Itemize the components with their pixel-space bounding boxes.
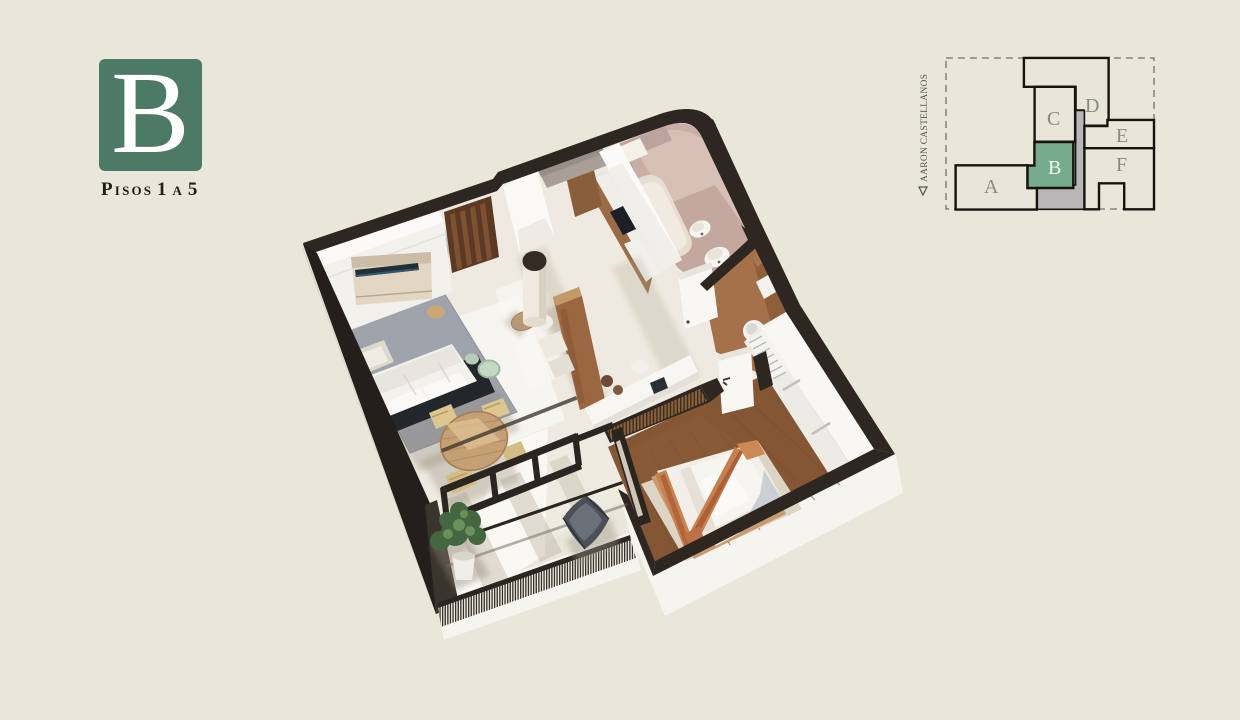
svg-text:E: E bbox=[1116, 125, 1128, 147]
svg-text:D: D bbox=[1085, 95, 1099, 117]
svg-text:AARON CASTELLANOS: AARON CASTELLANOS bbox=[920, 74, 930, 182]
svg-text:C: C bbox=[1047, 108, 1060, 130]
svg-text:F: F bbox=[1116, 154, 1127, 176]
svg-text:A: A bbox=[984, 176, 999, 198]
svg-text:B: B bbox=[1048, 157, 1061, 179]
